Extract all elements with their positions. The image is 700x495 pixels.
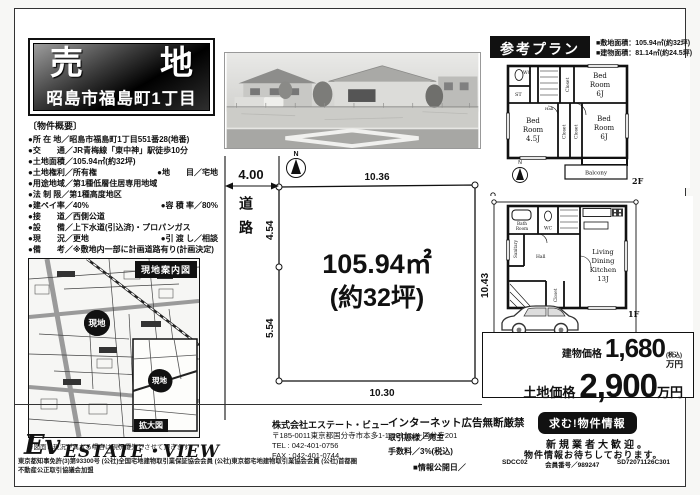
code-1: SDCC02 bbox=[502, 459, 528, 469]
overview-row-utilities: ●設 備／上下水道(引込済)・プロパンガス bbox=[28, 222, 220, 233]
plot-area-tsubo: (約32坪) bbox=[330, 283, 424, 312]
overview-row-road: ●接 道／西側公道 bbox=[28, 211, 220, 222]
room-closet-1f: Closet bbox=[553, 288, 558, 302]
room-closet-top: Closet bbox=[565, 77, 571, 92]
overview-row-rights: ●土地権利／所有権●地 目／宅地 bbox=[28, 167, 220, 178]
plan-areas: ■敷地面積：105.94㎡(約32坪) ■建物面積：81.14㎡(約24.5坪) bbox=[596, 39, 692, 59]
location-map: 現地案内図 現地 現地 拡大図 bbox=[28, 258, 200, 438]
site-marker-inset: 現地 bbox=[148, 369, 171, 392]
svg-text:13J: 13J bbox=[597, 275, 609, 283]
overview-row-land-area: ●土地面積／105.94㎡(約32坪) bbox=[28, 156, 220, 167]
road-width-dimension: 4.00 bbox=[225, 167, 279, 190]
room-hall-1f: Hall bbox=[536, 254, 546, 260]
svg-text:Bed: Bed bbox=[597, 115, 611, 123]
room-wc-1f: WC bbox=[544, 226, 553, 232]
map-drawing bbox=[29, 259, 199, 437]
svg-text:Bed: Bed bbox=[593, 72, 607, 80]
inset-map-label: 拡大図 bbox=[134, 419, 168, 432]
floor-label-2f: 2F bbox=[632, 176, 644, 186]
plan-site-area: ■敷地面積：105.94㎡(約32坪) bbox=[596, 39, 692, 49]
room-closet-mid2: Closet bbox=[574, 124, 580, 139]
deal-type: 取引態様／売主 bbox=[388, 432, 444, 443]
info-release-date: ■情報公開日／ bbox=[413, 462, 466, 473]
land-price-unit: 万円 bbox=[657, 382, 683, 401]
kitchen-counter bbox=[583, 209, 611, 217]
brokerage-fee: 手数料／3%(税込) bbox=[388, 446, 453, 457]
title-panel: 売 地 昭島市福島町1丁目 bbox=[33, 43, 210, 111]
sale-title-char1: 売 bbox=[50, 46, 83, 79]
plot-diagram: N 4.00 10.36 10.30 4.54 5.54 10.43 105.9… bbox=[222, 148, 502, 434]
svg-text:N: N bbox=[518, 160, 522, 166]
north-compass-icon: N bbox=[287, 151, 306, 178]
svg-text:Dining: Dining bbox=[592, 257, 616, 265]
room-wc-2f: WC bbox=[523, 70, 532, 76]
overview-row-coverage: ●建ペイ率／40%●容 積 率／80% bbox=[28, 200, 220, 211]
floor-label-1f: 1F bbox=[628, 309, 640, 319]
no-copy-notice: インターネット広告無断厳禁 bbox=[388, 415, 525, 430]
land-price-value: 2,900 bbox=[579, 369, 657, 402]
room-bathroom: Bath Room bbox=[516, 221, 528, 231]
building-price-row: 建物価格 1,680 (税込) 万円 bbox=[483, 335, 683, 369]
balcony-label: Balcony bbox=[585, 171, 608, 177]
dim-left-lower: 5.54 bbox=[265, 318, 276, 338]
building-price-label: 建物価格 bbox=[562, 345, 602, 360]
room-closet-mid1: Closet bbox=[562, 124, 568, 139]
plot-area-sqm: 105.94㎡ bbox=[322, 248, 432, 279]
sale-title-char2: 地 bbox=[160, 46, 193, 79]
seeking-listings-badge: 求む!物件情報 bbox=[538, 412, 637, 434]
stove-icon bbox=[612, 209, 623, 217]
svg-text:6J: 6J bbox=[600, 133, 607, 141]
room-sanitary: Sanitary bbox=[513, 239, 518, 258]
property-address-title: 昭島市福島町1丁目 bbox=[34, 85, 209, 109]
dim-top: 10.36 bbox=[364, 172, 389, 183]
svg-text:Living: Living bbox=[592, 248, 614, 256]
site-photo bbox=[224, 52, 481, 149]
toilet-icon-1f bbox=[545, 211, 552, 221]
property-overview: 〔物件概要〕 ●所 在 地／昭島市福島町1丁目551番28(地番) ●交 通／J… bbox=[28, 119, 220, 255]
land-price-row: 土地価格 2,900 万円 bbox=[483, 369, 683, 402]
site-marker: 現地 bbox=[84, 310, 110, 336]
bathtub-icon bbox=[512, 210, 531, 220]
code-2: SD72071126C301 bbox=[617, 459, 670, 469]
svg-text:N: N bbox=[293, 151, 298, 158]
dim-bottom: 10.30 bbox=[369, 388, 394, 399]
member-number: 会員番号／989247 bbox=[545, 459, 599, 469]
overview-row-regulation: ●法 制 限／第1種高度地区 bbox=[28, 189, 220, 200]
room-st: ST bbox=[515, 92, 522, 98]
overview-row-location: ●所 在 地／昭島市福島町1丁目551番28(地番) bbox=[28, 134, 220, 145]
building-price-unit: 万円 bbox=[666, 360, 683, 369]
svg-text:Kitchen: Kitchen bbox=[590, 266, 617, 274]
svg-text:Room: Room bbox=[594, 124, 615, 132]
svg-text:4.00: 4.00 bbox=[238, 167, 263, 182]
overview-row-status: ●現 況／更地●引 渡 し／相談 bbox=[28, 233, 220, 244]
dim-left-upper: 4.54 bbox=[265, 220, 276, 240]
land-price-label: 土地価格 bbox=[523, 382, 575, 401]
svg-text:Room: Room bbox=[523, 126, 544, 134]
room-hall-2f: Hall bbox=[545, 106, 554, 111]
vacant-lot-ground bbox=[227, 108, 479, 129]
svg-text:Bed: Bed bbox=[526, 117, 540, 125]
road-label: 道路 bbox=[236, 196, 256, 244]
title-block: 売 地 昭島市福島町1丁目 bbox=[28, 38, 215, 116]
north-compass-icon-2f: N bbox=[513, 160, 528, 183]
plot-outline bbox=[279, 185, 475, 381]
floor-plan-2f: WC ST Closet BedRoom6J Hall BedRoom4.5J … bbox=[490, 58, 690, 188]
map-title-badge: 現地案内図 bbox=[135, 261, 197, 278]
building-price-value: 1,680 bbox=[605, 335, 665, 361]
overview-row-zoning: ●用途地域／第1種低層住居専用地域 bbox=[28, 178, 220, 189]
svg-text:6J: 6J bbox=[596, 90, 603, 98]
svg-text:Room: Room bbox=[516, 226, 528, 231]
sale-title: 売 地 bbox=[34, 46, 209, 79]
overview-row-remarks: ●備 考／※敷地内一部に計画道路有り(計画決定) bbox=[28, 244, 220, 255]
svg-text:Room: Room bbox=[590, 81, 611, 89]
price-box: 建物価格 1,680 (税込) 万円 土地価格 2,900 万円 bbox=[482, 332, 694, 398]
svg-text:4.5J: 4.5J bbox=[526, 135, 540, 143]
footer-divider bbox=[15, 404, 482, 405]
reference-codes: SDCC02 会員番号／989247 SD72071126C301 bbox=[502, 459, 670, 469]
overview-heading: 〔物件概要〕 bbox=[28, 119, 220, 132]
overview-row-access: ●交 通／JR青梅線「東中神」駅徒歩10分 bbox=[28, 145, 220, 156]
